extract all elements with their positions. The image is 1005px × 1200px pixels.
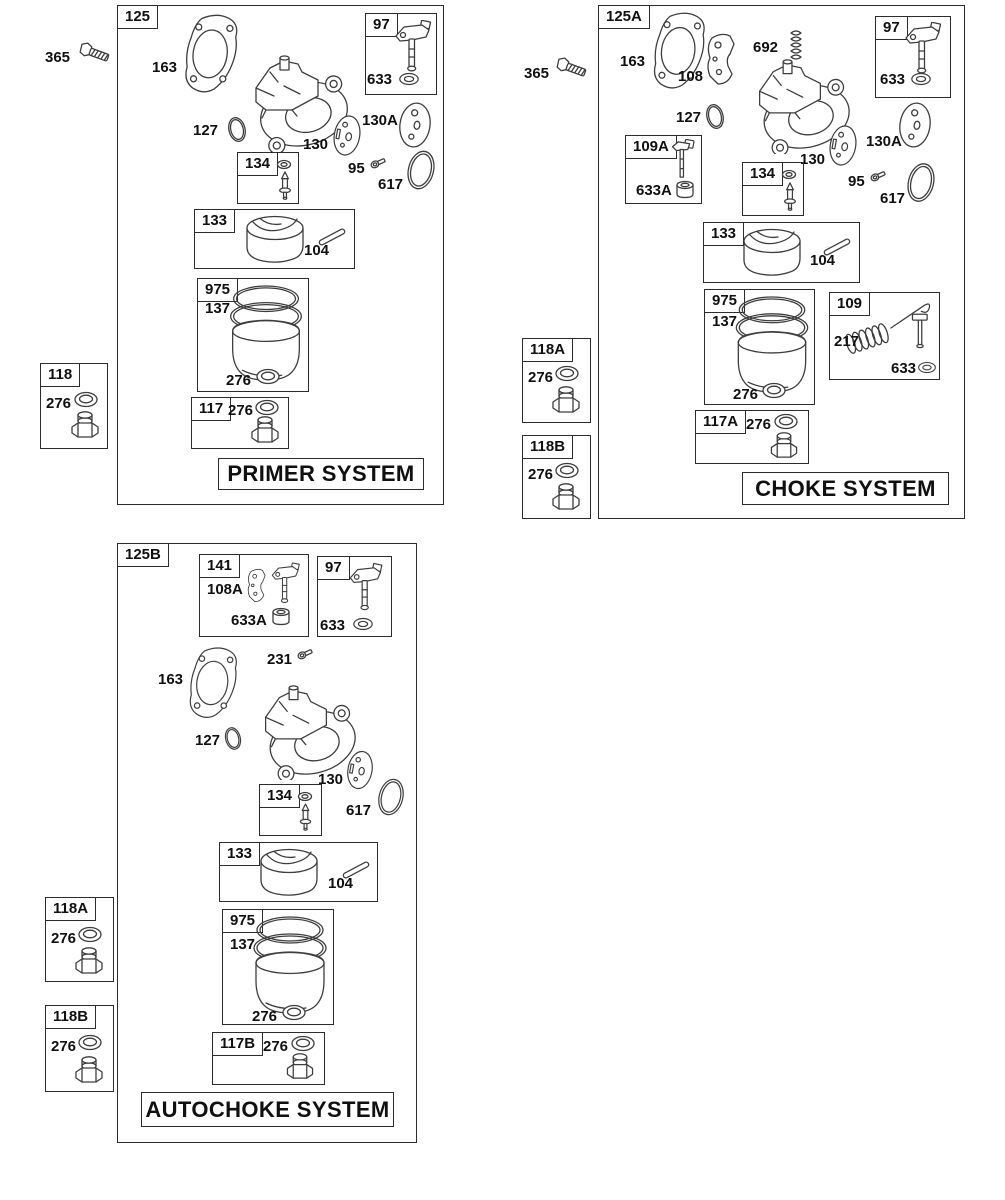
- washer-icon: [290, 1035, 316, 1052]
- primer-needle-kit-tag: 134: [237, 152, 278, 176]
- float-pin-icon: [822, 236, 852, 258]
- autochoke-fastener-kit-a-tag: 118A: [45, 897, 96, 921]
- choke-spring-label: 692: [753, 40, 778, 55]
- bowl-nut-icon: [73, 1055, 105, 1085]
- washer-label: 276: [528, 370, 553, 385]
- float-pin-icon: [341, 859, 371, 881]
- throttle-plate-icon: [826, 123, 860, 168]
- bowl-nut-icon: [550, 385, 582, 415]
- throttle-plate-label: 130: [303, 137, 328, 152]
- choke-plate-icon: [396, 100, 434, 150]
- mount-screw-label: 365: [45, 50, 70, 65]
- primer-nut-kit-tag: 117: [191, 397, 231, 421]
- seal-label: 633: [880, 72, 905, 87]
- throttle-plate-icon: [344, 748, 376, 792]
- autochoke-nut-kit-tag: 117B: [212, 1032, 263, 1056]
- choke-float-kit-tag: 133: [703, 222, 744, 246]
- washer-icon: [773, 413, 799, 430]
- washer-label: 276: [51, 931, 76, 946]
- bowl-nut-icon: [73, 946, 105, 976]
- seal-icon: [398, 72, 420, 86]
- throttle-shaft-icon: [388, 20, 434, 72]
- mount-screw-icon: [553, 55, 589, 85]
- needle-icon: [783, 182, 797, 211]
- washer-icon: [254, 399, 280, 416]
- shaft-plate-label: 108A: [207, 582, 243, 597]
- throttle-plate-icon: [330, 113, 364, 158]
- body-oring-icon: [226, 116, 248, 143]
- link-seal-label: 633: [891, 361, 916, 376]
- mount-screw-icon: [76, 40, 112, 70]
- washer-icon: [554, 365, 580, 382]
- float-icon: [740, 225, 804, 279]
- needle-seat-icon: [781, 169, 797, 180]
- gasket-label: 163: [620, 54, 645, 69]
- plate-screw-icon: [296, 646, 314, 661]
- choke-needle-kit-tag: 134: [742, 162, 783, 186]
- seal-icon: [910, 72, 932, 86]
- bushing-label: 633A: [636, 183, 672, 198]
- bowl-oring-label: 617: [880, 191, 905, 206]
- gasket-label: 163: [152, 60, 177, 75]
- primer-box-tag: 125: [117, 5, 158, 29]
- choke-box-tag: 125A: [598, 5, 650, 29]
- washer-label: 276: [733, 387, 758, 402]
- parts-diagram-page: 125 365 163 97 633 127 130 130A 134 95 6…: [0, 0, 1005, 1200]
- bowl-oring-label: 617: [346, 803, 371, 818]
- needle-icon: [299, 803, 312, 831]
- primer-system-title: PRIMER SYSTEM: [218, 458, 424, 490]
- choke-nut-kit-tag: 117A: [695, 410, 746, 434]
- thermostat-shaft-icon: [668, 139, 698, 181]
- bowl-nut-icon: [69, 410, 101, 440]
- float-icon: [243, 212, 307, 266]
- float-pin-icon: [317, 226, 347, 248]
- throttle-shaft-icon: [343, 562, 385, 612]
- seal-label: 633: [367, 72, 392, 87]
- autochoke-float-kit-tag: 133: [219, 842, 260, 866]
- washer-icon: [73, 391, 99, 408]
- bushing-icon: [675, 180, 695, 200]
- needle-seat-icon: [297, 791, 313, 802]
- seal-icon: [917, 361, 937, 374]
- primer-float-kit-tag: 133: [194, 209, 235, 233]
- washer-icon: [281, 1004, 307, 1021]
- washer-label: 276: [46, 396, 71, 411]
- idle-screw-icon: [369, 155, 387, 170]
- washer-icon: [77, 1034, 103, 1051]
- autochoke-fastener-kit-b-tag: 118B: [45, 1005, 96, 1029]
- choke-plate-label: 130A: [362, 113, 398, 128]
- gasket-label: 163: [158, 672, 183, 687]
- washer-icon: [554, 462, 580, 479]
- choke-plate-icon: [896, 100, 934, 150]
- mount-screw-label: 365: [524, 66, 549, 81]
- seal-icon: [352, 617, 374, 631]
- washer-icon: [255, 368, 281, 385]
- washer-icon: [77, 926, 103, 943]
- washer-label: 276: [226, 373, 251, 388]
- bowl-oring-icon: [375, 776, 407, 818]
- body-oring-icon: [223, 726, 243, 751]
- idle-screw-label: 95: [848, 174, 865, 189]
- washer-label: 276: [528, 467, 553, 482]
- needle-seat-icon: [276, 159, 292, 170]
- washer-icon: [761, 382, 787, 399]
- choke-fastener-kit-b-tag: 118B: [522, 435, 573, 459]
- float-icon: [257, 845, 321, 899]
- body-oring-label: 127: [676, 110, 701, 125]
- body-oring-label: 127: [193, 123, 218, 138]
- bushing-label: 633A: [231, 613, 267, 628]
- washer-label: 276: [51, 1039, 76, 1054]
- link-spring-label: 217: [834, 334, 859, 349]
- plate-screw-label: 231: [267, 652, 292, 667]
- carburetor-body-icon: [232, 682, 360, 780]
- idle-screw-label: 95: [348, 161, 365, 176]
- autochoke-system-title: AUTOCHOKE SYSTEM: [141, 1092, 394, 1127]
- throttle-shaft-icon: [898, 22, 944, 74]
- autochoke-needle-kit-tag: 134: [259, 784, 300, 808]
- washer-label: 276: [746, 417, 771, 432]
- body-oring-icon: [704, 103, 726, 130]
- autochoke-shaft-kit-tag: 141: [199, 554, 240, 578]
- bowl-oring-icon: [404, 148, 438, 192]
- bowl-nut-icon: [249, 415, 281, 445]
- autochoke-box-tag: 125B: [117, 543, 169, 567]
- choke-fastener-kit-a-tag: 118A: [522, 338, 573, 362]
- idle-screw-icon: [869, 168, 887, 183]
- bushing-icon: [271, 607, 291, 627]
- choke-system-title: CHOKE SYSTEM: [742, 472, 949, 505]
- bowl-nut-icon: [768, 431, 800, 460]
- bowl-oring-label: 617: [378, 177, 403, 192]
- body-oring-label: 127: [195, 733, 220, 748]
- bowl-oring-icon: [904, 160, 938, 205]
- bowl-nut-icon: [284, 1052, 316, 1081]
- primer-fastener-kit-tag: 118: [40, 363, 80, 387]
- choke-shaft-icon: [266, 556, 302, 610]
- needle-icon: [278, 171, 292, 200]
- washer-label: 276: [252, 1009, 277, 1024]
- bowl-nut-icon: [550, 482, 582, 512]
- seal-label: 633: [320, 618, 345, 633]
